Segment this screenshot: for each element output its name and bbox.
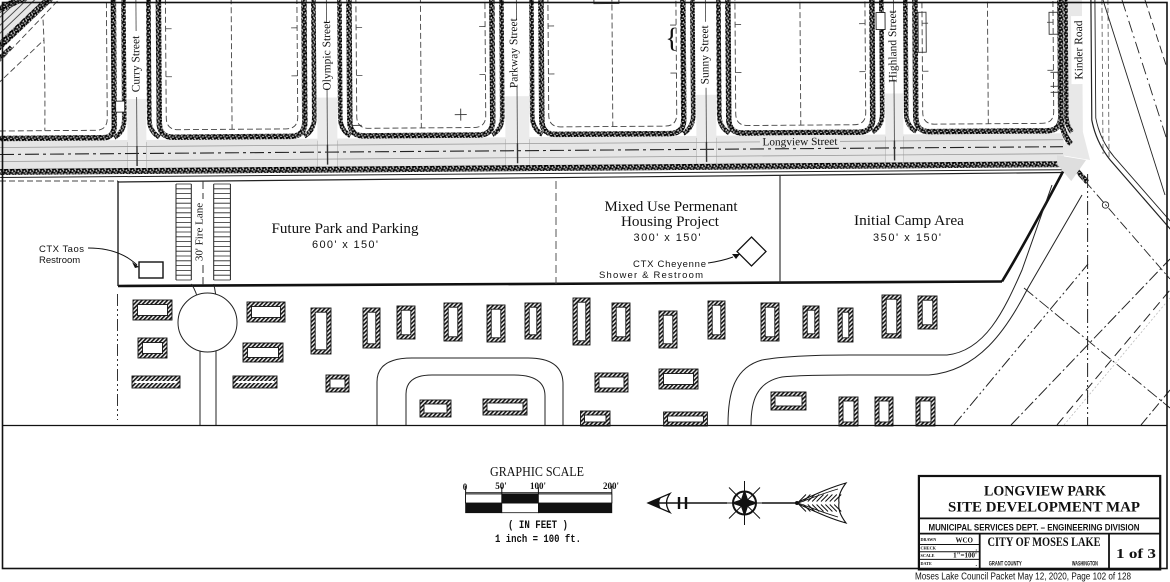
svg-text:1 of 3: 1 of 3 [1116,547,1156,562]
svg-text:Moses Lake Council Packet May: Moses Lake Council Packet May 12, 2020, … [915,572,1131,582]
svg-text:Housing Project: Housing Project [621,214,720,230]
svg-text:GRANT COUNTY: GRANT COUNTY [989,562,1022,568]
svg-text:600' x 150': 600' x 150' [312,239,378,251]
svg-text:GRAPHIC SCALE: GRAPHIC SCALE [490,464,584,479]
svg-text:SCALE: SCALE [921,553,935,558]
svg-text:Future Park and Parking: Future Park and Parking [272,221,419,237]
svg-text:Olympic Street: Olympic Street [321,20,334,91]
svg-text:WCO: WCO [956,537,974,545]
svg-text:( IN FEET ): ( IN FEET ) [508,520,568,532]
svg-text:Kinder Road: Kinder Road [1073,20,1085,79]
svg-text:SITE DEVELOPMENT MAP: SITE DEVELOPMENT MAP [948,500,1140,516]
svg-text:1 inch = 100 ft.: 1 inch = 100 ft. [495,534,581,546]
svg-text:200': 200' [603,481,619,491]
svg-text:300' x 150': 300' x 150' [634,232,701,244]
svg-text:Initial Camp Area: Initial Camp Area [854,213,964,229]
svg-text:30' Fire Lane: 30' Fire Lane [194,203,206,261]
svg-text:CHECK: CHECK [921,546,937,551]
svg-text:Parkway Street: Parkway Street [508,17,521,88]
svg-text:DRAWN: DRAWN [921,537,937,542]
svg-text:CTX Cheyenne: CTX Cheyenne [633,259,706,270]
svg-text:Mixed Use Permenant: Mixed Use Permenant [605,199,739,215]
svg-text:WASHINGTON: WASHINGTON [1072,562,1098,568]
svg-text:Curry Street: Curry Street [130,35,142,92]
svg-text:350' x 150': 350' x 150' [873,232,941,244]
svg-text:Longview Street: Longview Street [762,136,837,149]
svg-text:1"=100': 1"=100' [953,552,977,560]
svg-text:50': 50' [495,481,507,491]
svg-text:Sunny Street: Sunny Street [699,24,711,84]
svg-text:CITY OF MOSES LAKE: CITY OF MOSES LAKE [988,534,1101,549]
svg-text:MUNICIPAL SERVICES DEPT. – E: MUNICIPAL SERVICES DEPT. – ENGINEERING D… [929,523,1140,533]
svg-text:0: 0 [463,482,468,492]
svg-text:LONGVIEW PARK: LONGVIEW PARK [984,484,1106,500]
svg-text:DATE: DATE [921,561,933,566]
svg-text:Highland Street: Highland Street [887,9,900,82]
svg-text:Restroom: Restroom [39,255,80,266]
svg-text:CTX Taos: CTX Taos [39,244,84,255]
svg-text:{: { [665,23,679,54]
svg-text:100': 100' [530,481,546,491]
